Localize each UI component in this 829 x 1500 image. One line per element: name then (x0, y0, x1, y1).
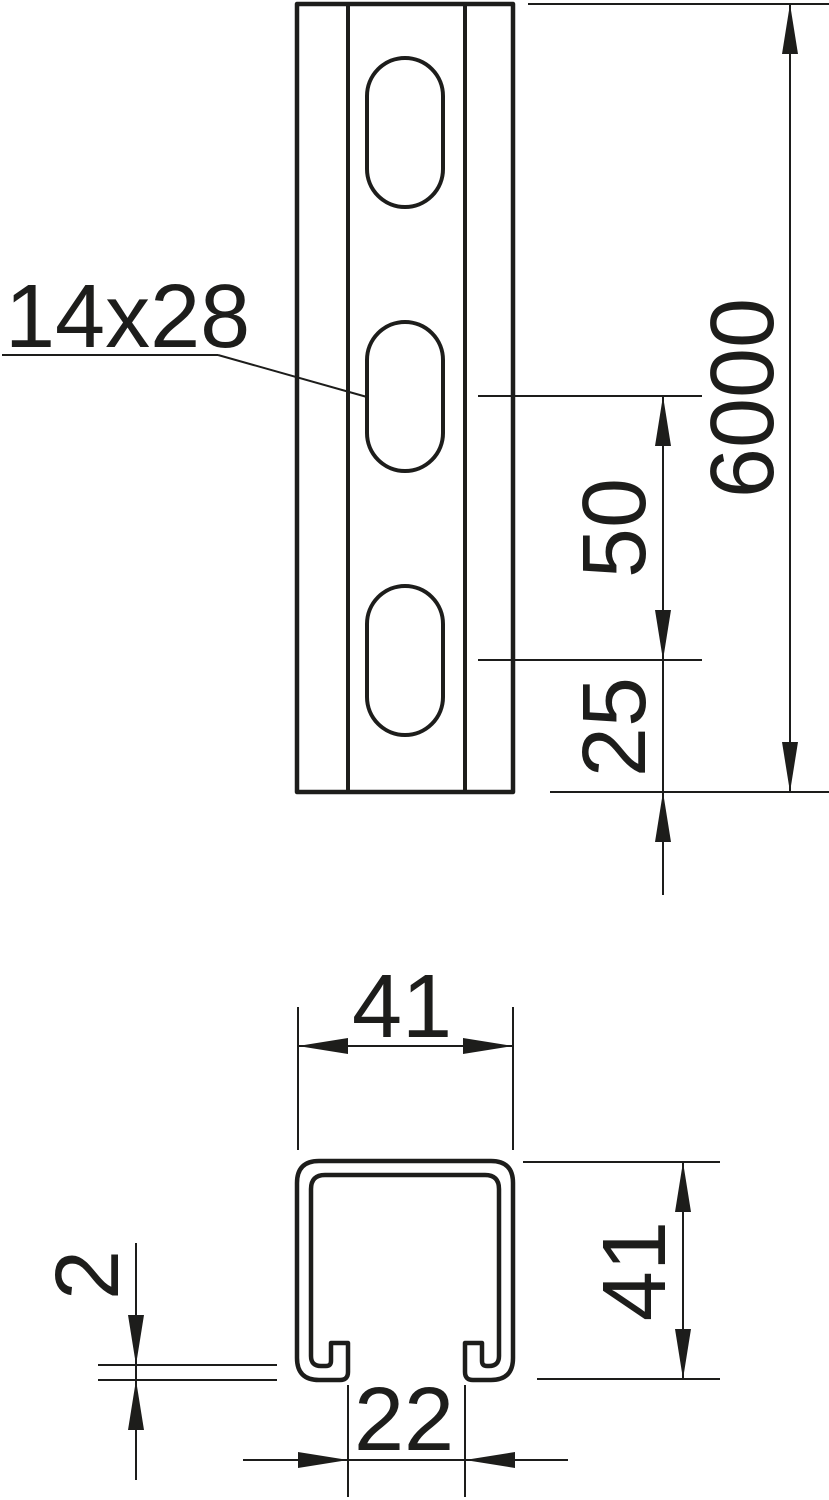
slot-hole-top (367, 58, 443, 207)
profile-outline (297, 1161, 513, 1380)
thickness-dimension-label: 2 (38, 1250, 138, 1300)
height-dimension-label: 41 (585, 1221, 685, 1321)
dimension-thickness: 2 (38, 1243, 277, 1480)
dimension-end-offset: 25 (565, 660, 671, 895)
arrowhead-right-icon (298, 1452, 348, 1468)
arrowhead-up-icon (675, 1162, 691, 1212)
slot-size-label: 14x28 (5, 267, 250, 367)
arrowhead-down-icon (675, 1329, 691, 1379)
arrowhead-down-icon (655, 610, 671, 660)
front-view: 14x28 6000 50 25 (2, 4, 829, 895)
arrowhead-left-icon (465, 1452, 515, 1468)
arrowhead-down-icon (128, 1315, 144, 1365)
opening-dimension-label: 22 (354, 1370, 454, 1470)
slot-hole-bottom (367, 586, 443, 735)
end-offset-dimension-label: 25 (565, 677, 665, 777)
arrowhead-right-icon (463, 1038, 513, 1054)
length-dimension-label: 6000 (693, 298, 793, 498)
arrowhead-up-icon (782, 4, 798, 54)
arrowhead-left-icon (298, 1038, 348, 1054)
dimension-width: 41 (298, 957, 513, 1150)
dimension-slot-pitch: 50 (565, 396, 671, 660)
arrowhead-up-icon (655, 396, 671, 446)
slot-hole-middle (367, 322, 443, 471)
dimension-height: 41 (523, 1162, 720, 1379)
arrowhead-up-icon (128, 1380, 144, 1430)
slot-pitch-dimension-label: 50 (565, 478, 665, 578)
dimension-opening: 22 (243, 1370, 568, 1497)
width-dimension-label: 41 (352, 957, 452, 1057)
arrowhead-down-icon (782, 742, 798, 792)
dimension-length: 6000 (693, 4, 798, 792)
cross-section-view: 41 41 2 22 (38, 957, 720, 1497)
strut-channel-technical-drawing: 14x28 6000 50 25 (0, 0, 829, 1500)
arrowhead-up-icon (655, 792, 671, 842)
